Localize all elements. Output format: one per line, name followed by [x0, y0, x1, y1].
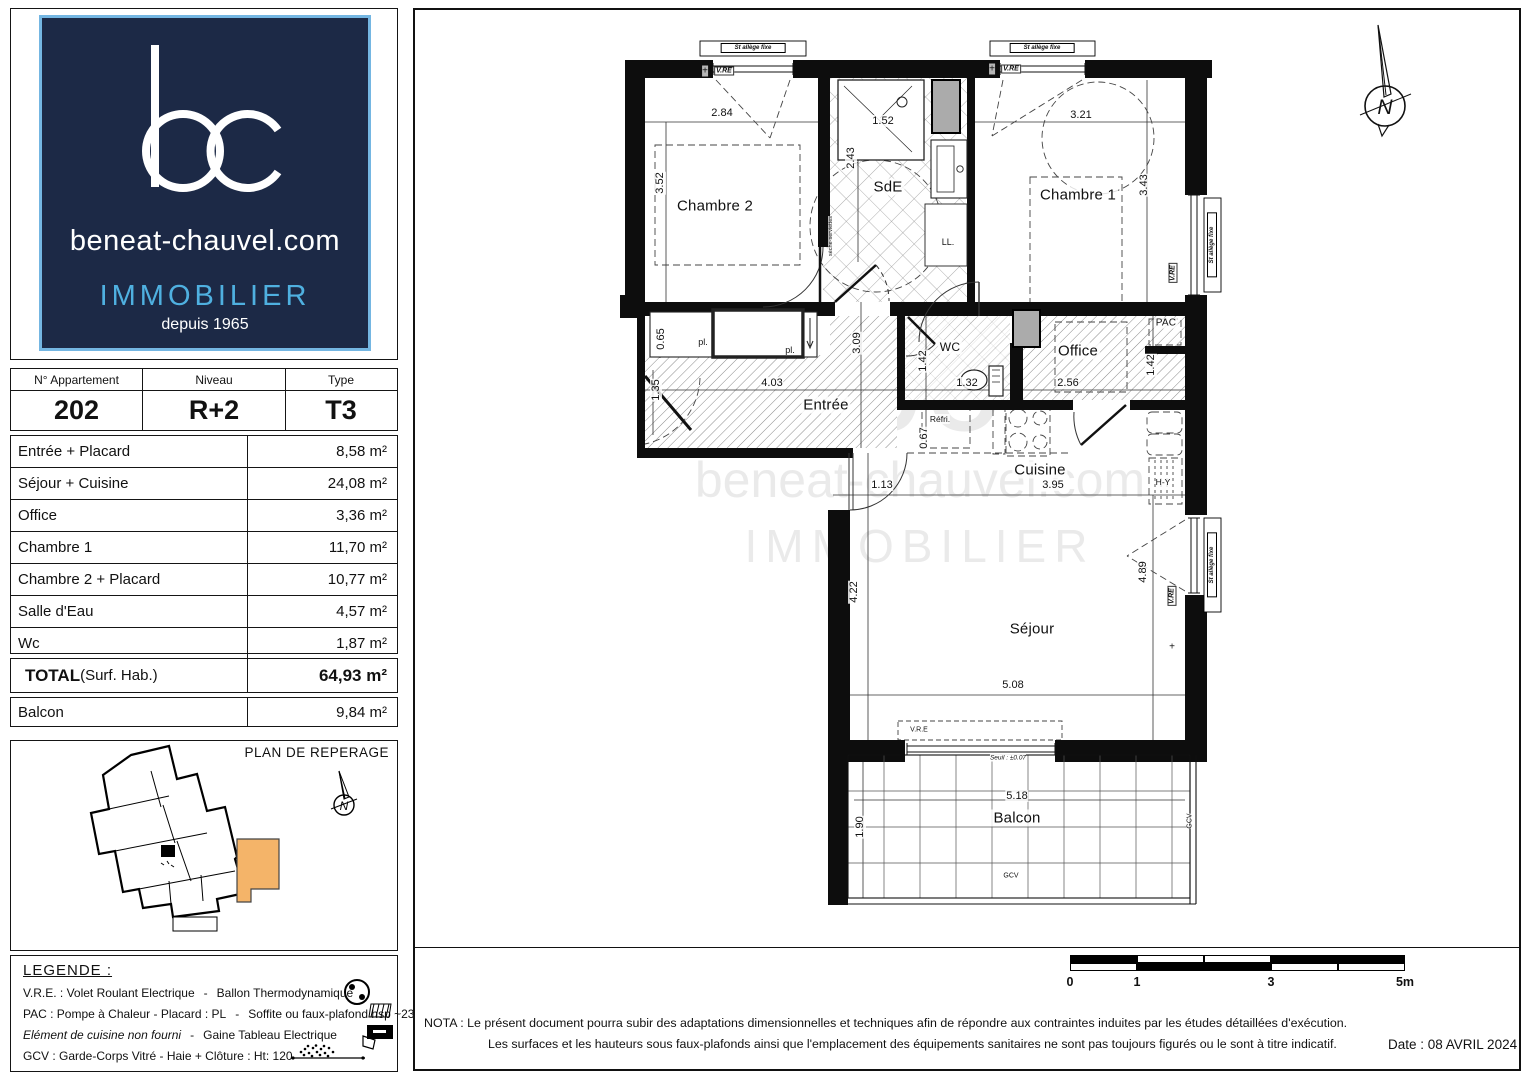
legend-line: V.R.E. : Volet Roulant Electrique-Ballon… [23, 983, 393, 1004]
location-map-drawing: N [11, 741, 399, 946]
balcony-area-row: Balcon 9,84 m² [10, 697, 398, 727]
area-row: Salle d'Eau4,57 m² [11, 595, 397, 627]
unit-info-value: T3 [286, 391, 396, 430]
agency-logo: beneat-chauvel.com IMMOBILIER depuis 196… [39, 15, 371, 351]
total-suffix: (Surf. Hab.) [80, 667, 158, 684]
total-label: TOTAL [11, 666, 80, 686]
area-row-label: Chambre 2 + Placard [11, 571, 247, 588]
area-row-value: 3,36 m² [247, 500, 397, 531]
unit-info-value: 202 [11, 391, 143, 430]
area-row-value: 1,87 m² [247, 628, 397, 659]
area-row: Entrée + Placard8,58 m² [11, 436, 397, 467]
svg-text:N: N [1377, 96, 1393, 119]
logo-sector: IMMOBILIER [42, 280, 368, 313]
unit-info-value: R+2 [143, 391, 286, 430]
unit-info-table: N° AppartementNiveauType 202R+2T3 [10, 368, 398, 431]
area-row-value: 4,57 m² [247, 596, 397, 627]
location-map-title: PLAN DE REPERAGE [244, 745, 389, 760]
hedge-fence-icon [289, 1044, 369, 1064]
unit-info-headers: N° AppartementNiveauType [11, 369, 397, 391]
area-row: Office3,36 m² [11, 499, 397, 531]
scale-tick: 5m [1396, 975, 1414, 989]
legend-panel: LEGENDE : V.R.E. : Volet Roulant Electri… [10, 955, 398, 1072]
nota-text: NOTA : Le présent document pourra subir … [424, 1013, 1379, 1055]
area-row: Chambre 111,70 m² [11, 531, 397, 563]
area-row-label: Chambre 1 [11, 539, 247, 556]
unit-info-values: 202R+2T3 [11, 391, 397, 430]
area-row-label: Wc [11, 635, 247, 652]
date-label: Date : 08 AVRIL 2024 [1388, 1037, 1517, 1052]
logo-domain: beneat-chauvel.com [42, 225, 368, 258]
area-row-label: Entrée + Placard [11, 443, 247, 460]
bc-monogram-icon [95, 32, 315, 212]
logo-panel: beneat-chauvel.com IMMOBILIER depuis 196… [10, 8, 398, 360]
mini-compass-icon: N [331, 771, 357, 815]
floor-plan: Chambre 2SdEChambre 1EntréeWCOfficePACCu… [620, 40, 1232, 920]
area-row-value: 24,08 m² [247, 468, 397, 499]
floor-plan-drawing [620, 40, 1232, 920]
area-row: Séjour + Cuisine24,08 m² [11, 467, 397, 499]
floorplan-sheet: { "branding": { "monogram": "bc", "domai… [0, 0, 1528, 1080]
area-row: Chambre 2 + Placard10,77 m² [11, 563, 397, 595]
total-value: 64,93 m² [247, 659, 397, 692]
legend-title: LEGENDE : [23, 962, 112, 979]
unit-info-header: Type [286, 369, 396, 390]
area-row-label: Séjour + Cuisine [11, 475, 247, 492]
balcony-label: Balcon [11, 704, 64, 721]
legend-line: Elément de cuisine non fourni-Gaine Tabl… [23, 1025, 393, 1046]
highlighted-unit [237, 839, 279, 902]
unit-info-header: Niveau [143, 369, 286, 390]
total-area-row: TOTAL (Surf. Hab.) 64,93 m² [10, 658, 398, 693]
area-row-label: Office [11, 507, 247, 524]
balcony-value: 9,84 m² [247, 698, 397, 726]
sheet-divider [415, 947, 1519, 948]
location-map-panel: PLAN DE REPERAGE N [10, 740, 398, 951]
scale-tick: 1 [1134, 975, 1141, 989]
scale-tick: 3 [1268, 975, 1275, 989]
room-areas-table: Entrée + Placard8,58 m²Séjour + Cuisine2… [10, 435, 398, 654]
logo-since: depuis 1965 [42, 316, 368, 334]
scale-tick: 0 [1067, 975, 1074, 989]
area-row: Wc1,87 m² [11, 627, 397, 659]
legend-line: PAC : Pompe à Chaleur - Placard : PL-Sof… [23, 1004, 393, 1025]
unit-info-header: N° Appartement [11, 369, 143, 390]
scale-bar: 0135m [1070, 955, 1410, 997]
area-row-value: 11,70 m² [247, 532, 397, 563]
area-row-value: 8,58 m² [247, 436, 397, 467]
svg-text:N: N [340, 799, 349, 813]
north-compass-icon: N [1348, 22, 1428, 140]
soffit-hatch-icon [367, 1002, 393, 1020]
area-row-value: 10,77 m² [247, 564, 397, 595]
area-row-label: Salle d'Eau [11, 603, 247, 620]
